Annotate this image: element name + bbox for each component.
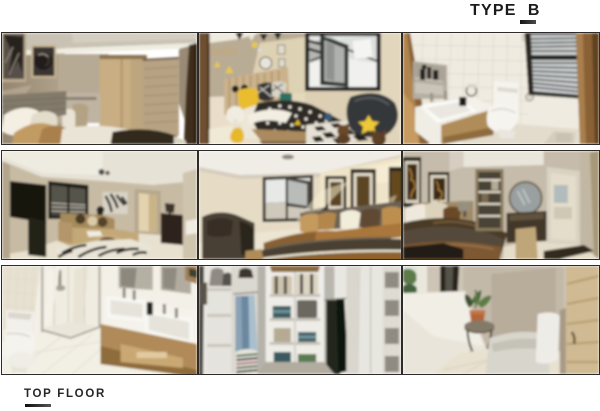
svg-text:hello: hello <box>211 43 238 58</box>
